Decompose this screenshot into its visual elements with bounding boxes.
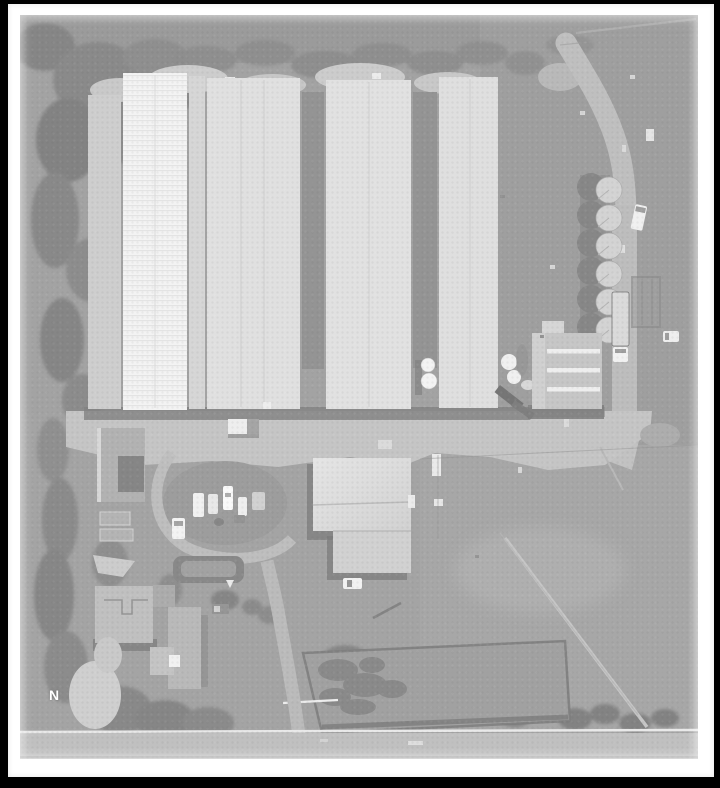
barn-4 (207, 78, 300, 409)
vehicle (223, 486, 233, 510)
barn-gap-1 (302, 92, 324, 369)
vehicle (238, 497, 247, 516)
vehicle (208, 494, 218, 514)
bottom-road (20, 730, 698, 759)
garden-plot (100, 529, 133, 541)
barn-6 (439, 77, 498, 408)
north-indicator: N (46, 688, 62, 702)
small-shed (228, 419, 247, 434)
stock-pens (632, 277, 660, 327)
photo-mat: N (8, 4, 714, 777)
light-field-patch (455, 528, 625, 612)
barn-gap-2 (413, 92, 437, 368)
barn-row (88, 73, 498, 410)
barn-1 (88, 95, 121, 409)
barn-3 (189, 76, 205, 409)
vehicle (193, 493, 204, 517)
vehicle (252, 492, 265, 510)
aerial-photo: N (20, 15, 698, 759)
car (343, 578, 362, 589)
garden-plot (100, 512, 130, 525)
semi-trailer-truck (612, 292, 629, 346)
